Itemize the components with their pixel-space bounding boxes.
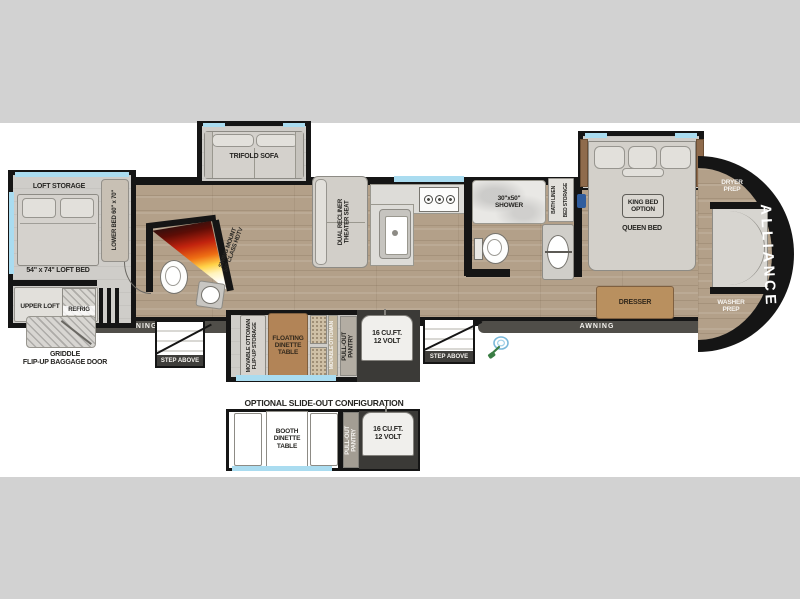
loft-bed-label-wrap: 54" x 74" LOFT BED xyxy=(8,266,108,276)
loft-bed-pillow-2 xyxy=(60,198,94,218)
theater-seat-label-line2: THEATER SEAT xyxy=(344,199,350,245)
washer-prep-line1: WASHER xyxy=(717,299,744,306)
bed-window-1 xyxy=(585,133,607,138)
bed-pillow-3 xyxy=(660,146,691,169)
step-left-diagonal xyxy=(156,324,212,355)
theater-seat-label: DUAL RECLINER THEATER SEAT xyxy=(338,199,351,245)
brand-wordmark-wrap: ALLIANCE xyxy=(746,179,790,333)
stove-burner-icon xyxy=(446,195,455,204)
step-left-box: STEP ABOVE xyxy=(155,320,205,368)
refrig-label-wrap: REFRIG xyxy=(63,306,95,315)
kitchen-bath-wall xyxy=(464,177,472,276)
griddle-label-line2: FLIP-UP BAGGAGE DOOR xyxy=(23,359,107,367)
nightstand-left xyxy=(580,139,588,187)
shower: 30"x50" SHOWER xyxy=(472,180,546,224)
washer-prep-line2: PREP xyxy=(723,306,740,313)
bed-window-2 xyxy=(675,133,697,138)
theater-seat-label-line1: DUAL RECLINER xyxy=(338,199,344,245)
loft-storage-label-wrap: LOFT STORAGE xyxy=(14,182,104,192)
ottoman-strip-label: MOVABLE OTTOMAN xyxy=(330,321,335,369)
optional-title-wrap: OPTIONAL SLIDE-OUT CONFIGURATION xyxy=(226,398,422,409)
dinette-label-line1: FLOATING xyxy=(272,335,303,342)
dinette-bench-1 xyxy=(310,315,327,344)
loft-bed-pillow-1 xyxy=(22,198,56,218)
sofa-back-cushion-right xyxy=(256,134,298,147)
pantry-line2: PANTRY xyxy=(349,332,355,361)
bed-storage-label-wrap: BED STORAGE xyxy=(561,179,573,221)
ottoman-strip: MOVABLE OTTOMAN xyxy=(328,315,338,376)
dryer-prep-line1: DRYER xyxy=(721,179,743,186)
upper-loft-label-wrap: UPPER LOFT xyxy=(15,302,65,311)
fridge-label-line1: 16 CU.FT. xyxy=(372,330,402,338)
king-bed-label-line1: KING BED xyxy=(628,199,658,206)
step-right-label-bar: STEP ABOVE xyxy=(425,351,473,362)
stove xyxy=(419,187,459,212)
optional-fridge: 16 CU.FT. 12 VOLT xyxy=(362,412,414,456)
step-left-label-bar: STEP ABOVE xyxy=(157,355,203,366)
step-right-diagonal xyxy=(424,321,482,351)
trifold-sofa-label: TRIFOLD SOFA xyxy=(230,153,279,161)
upper-loft-label: UPPER LOFT xyxy=(20,303,59,310)
bath-hall-wall xyxy=(466,269,510,277)
loft-window-left xyxy=(9,192,14,274)
floating-dinette-table: FLOATING DINETTE TABLE xyxy=(268,313,308,378)
dinette-label-line2: DINETTE xyxy=(275,342,301,349)
main-toilet xyxy=(482,233,509,264)
shower-label-line2: SHOWER xyxy=(495,202,523,209)
pantry-label: PULL-OUT PANTRY xyxy=(342,332,355,361)
kitchen-sink xyxy=(379,209,411,259)
booth-bench-left xyxy=(234,413,262,466)
loft-storage-label: LOFT STORAGE xyxy=(33,183,85,191)
lower-bed-label-wrap: LOWER BED 60" x 70" xyxy=(101,181,129,260)
bed-accent-pillow xyxy=(622,168,664,177)
queen-bed-label: QUEEN BED xyxy=(622,225,662,233)
floorplan-canvas: AWNING AWNING LOFT STORAGE 54" x 74" LOF… xyxy=(0,0,800,599)
movable-ottoman-line2: FLIP-UP STORAGE xyxy=(253,319,259,372)
bed-storage-label: BED STORAGE xyxy=(564,183,569,217)
dinette-slide-window xyxy=(236,375,336,381)
king-bed-option-box: KING BED OPTION xyxy=(622,194,664,218)
loft-divider-wall xyxy=(13,280,97,286)
optional-pantry-line2: PANTRY xyxy=(351,426,357,455)
rear-sink-bowl xyxy=(201,286,220,304)
window-top-2 xyxy=(394,176,464,182)
dryer-prep-line2: PREP xyxy=(724,186,741,193)
booth-label-line2: DINETTE xyxy=(274,435,300,442)
optional-title: OPTIONAL SLIDE-OUT CONFIGURATION xyxy=(244,399,403,408)
main-toilet-bowl xyxy=(487,239,502,256)
pantry-line1: PULL-OUT xyxy=(342,332,348,361)
bath-linen-label: BATH LINEN xyxy=(552,186,557,214)
top-gray-band xyxy=(0,0,800,123)
trifold-sofa-label-wrap: TRIFOLD SOFA xyxy=(209,152,299,162)
griddle-label-line1: GRIDDLE xyxy=(50,351,80,359)
optional-pantry-label: PULL-OUT PANTRY xyxy=(345,426,358,455)
stove-burner-icon xyxy=(424,195,433,204)
booth-label-line3: TABLE xyxy=(277,443,297,450)
vanity-faucet-icon xyxy=(545,251,572,253)
booth-dinette-table: BOOTH DINETTE TABLE xyxy=(266,411,308,467)
bed-pillow-2 xyxy=(628,146,657,169)
optional-fridge-line1: 16 CU.FT. xyxy=(373,426,403,434)
dresser-label: DRESSER xyxy=(619,299,651,307)
optional-fridge-hinge-icon xyxy=(385,406,387,413)
brand-wordmark: ALLIANCE xyxy=(757,204,779,309)
awning-right-label: AWNING xyxy=(580,323,615,331)
bath-linen-label-wrap: BATH LINEN xyxy=(549,179,561,221)
fridge-hinge-icon xyxy=(384,309,386,316)
rear-toilet-bowl xyxy=(165,266,181,286)
bath-vanity xyxy=(542,224,574,280)
step-left-label: STEP ABOVE xyxy=(161,358,199,364)
booth-bench-right xyxy=(310,413,338,466)
step-right-box: STEP ABOVE xyxy=(423,318,475,364)
optional-fridge-line2: 12 VOLT xyxy=(375,434,401,442)
sofa-window-2 xyxy=(283,123,305,127)
theater-seat-label-wrap: DUAL RECLINER THEATER SEAT xyxy=(324,184,364,260)
sofa-back-cushion-left xyxy=(212,134,254,147)
optional-window xyxy=(232,466,332,471)
loft-bed xyxy=(17,194,99,266)
movable-ottoman-label: MOVABLE OTTOMAN FLIP-UP STORAGE xyxy=(247,319,259,372)
washer-prep-label-wrap: WASHER PREP xyxy=(710,296,752,316)
bed-pillow-1 xyxy=(594,146,625,169)
step-right-label: STEP ABOVE xyxy=(430,354,468,360)
griddle-label-wrap: GRIDDLE FLIP-UP BAGGAGE DOOR xyxy=(10,349,120,369)
optional-pantry: PULL-OUT PANTRY xyxy=(343,412,359,468)
loft-bed-label: 54" x 74" LOFT BED xyxy=(26,267,89,275)
dinette-bench-2 xyxy=(310,347,327,376)
lower-bed-label: LOWER BED 60" x 70" xyxy=(112,190,118,250)
refrig-label: REFRIG xyxy=(68,307,89,313)
kitchen-faucet-icon xyxy=(392,230,398,236)
awning-rail-right: AWNING xyxy=(478,321,716,333)
dresser: DRESSER xyxy=(596,286,674,319)
dinette-label-line3: TABLE xyxy=(278,349,298,356)
pullout-pantry: PULL-OUT PANTRY xyxy=(340,316,357,376)
rear-toilet xyxy=(160,260,188,294)
loft-bed-seam xyxy=(20,223,96,224)
bath-bedroom-wall xyxy=(574,177,582,277)
bottom-gray-band xyxy=(0,477,800,599)
optional-pantry-line1: PULL-OUT xyxy=(345,426,351,455)
king-bed-label-line2: OPTION xyxy=(631,206,655,213)
loft-window-top xyxy=(15,172,129,177)
fridge-label-line2: 12 VOLT xyxy=(374,338,400,346)
movable-ottoman-label-wrap: MOVABLE OTTOMAN FLIP-UP STORAGE xyxy=(240,316,266,376)
stove-burner-icon xyxy=(435,195,444,204)
queen-bed-label-wrap: QUEEN BED xyxy=(604,224,680,234)
bed-lamp-left xyxy=(577,194,586,208)
booth-label-line1: BOOTH xyxy=(276,428,298,435)
shower-label-line1: 30"x50" xyxy=(498,195,521,202)
sofa-window-1 xyxy=(203,123,225,127)
loft-ladder xyxy=(99,288,119,323)
outdoor-sprayer-icon xyxy=(486,334,510,360)
fridge: 16 CU.FT. 12 VOLT xyxy=(361,315,413,361)
